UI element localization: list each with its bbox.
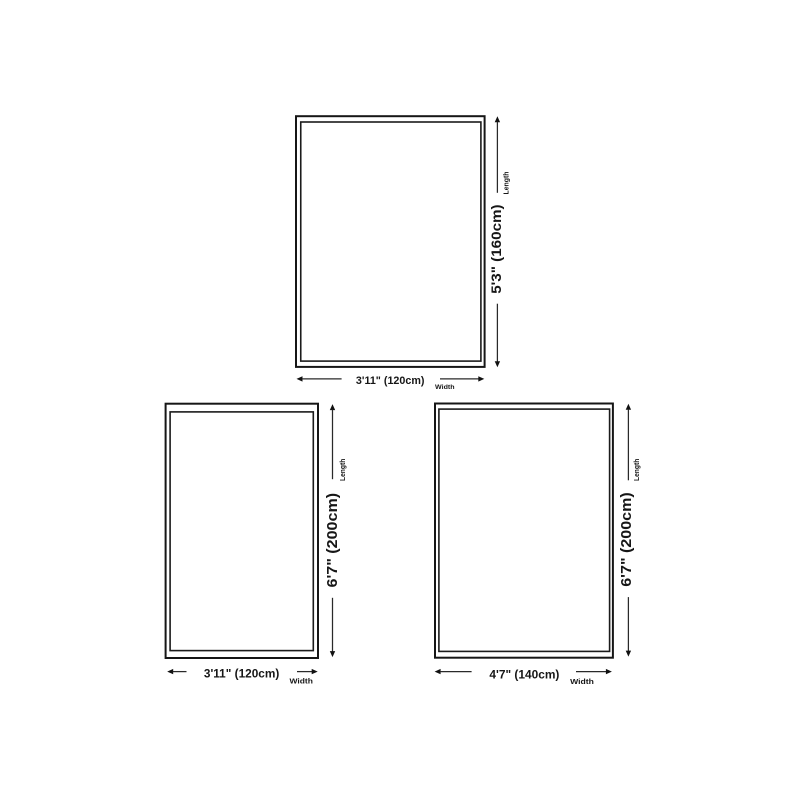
- svg-text:Length: Length: [504, 172, 511, 195]
- svg-text:3'11" (120cm): 3'11" (120cm): [204, 666, 279, 680]
- svg-text:6'7" (200cm): 6'7" (200cm): [325, 493, 341, 588]
- svg-text:Length: Length: [634, 459, 641, 481]
- svg-text:6'7" (200cm): 6'7" (200cm): [619, 492, 635, 587]
- svg-text:3'11" (120cm): 3'11" (120cm): [356, 375, 425, 387]
- svg-text:Length: Length: [340, 459, 347, 481]
- svg-text:Width: Width: [290, 679, 313, 686]
- svg-text:5'3" (160cm): 5'3" (160cm): [489, 204, 504, 293]
- svg-text:4'7" (140cm): 4'7" (140cm): [489, 667, 559, 681]
- svg-text:Width: Width: [570, 679, 594, 686]
- svg-text:Width: Width: [435, 384, 455, 391]
